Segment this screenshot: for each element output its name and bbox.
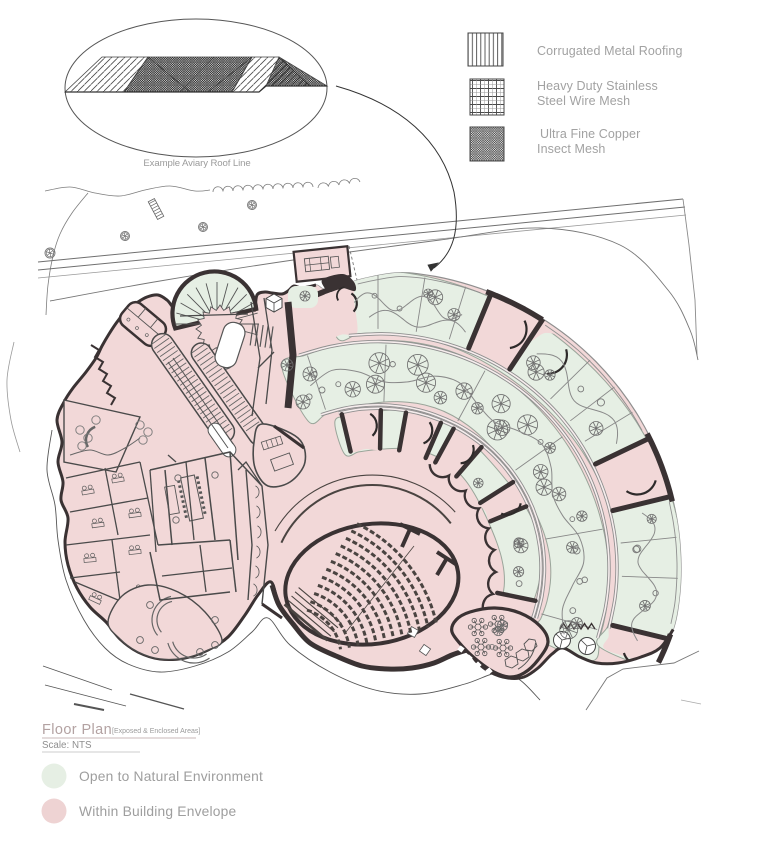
svg-text:Floor Plan: Floor Plan [42,722,112,738]
svg-text:Steel Wire Mesh: Steel Wire Mesh [537,94,630,108]
svg-text:Heavy Duty Stainless: Heavy Duty Stainless [537,79,658,93]
svg-text:Corrugated Metal Roofing: Corrugated Metal Roofing [537,44,683,58]
svg-text:Scale: NTS: Scale: NTS [42,740,92,751]
svg-text:[Exposed & Enclosed Areas]: [Exposed & Enclosed Areas] [112,728,200,735]
svg-text:Insect Mesh: Insect Mesh [537,142,606,156]
svg-text:Example Aviary Roof Line: Example Aviary Roof Line [143,158,250,169]
svg-text:Within Building Envelope: Within Building Envelope [79,804,237,819]
svg-text:Ultra Fine Copper: Ultra Fine Copper [540,127,640,141]
svg-text:Open to Natural Environment: Open to Natural Environment [79,769,263,784]
